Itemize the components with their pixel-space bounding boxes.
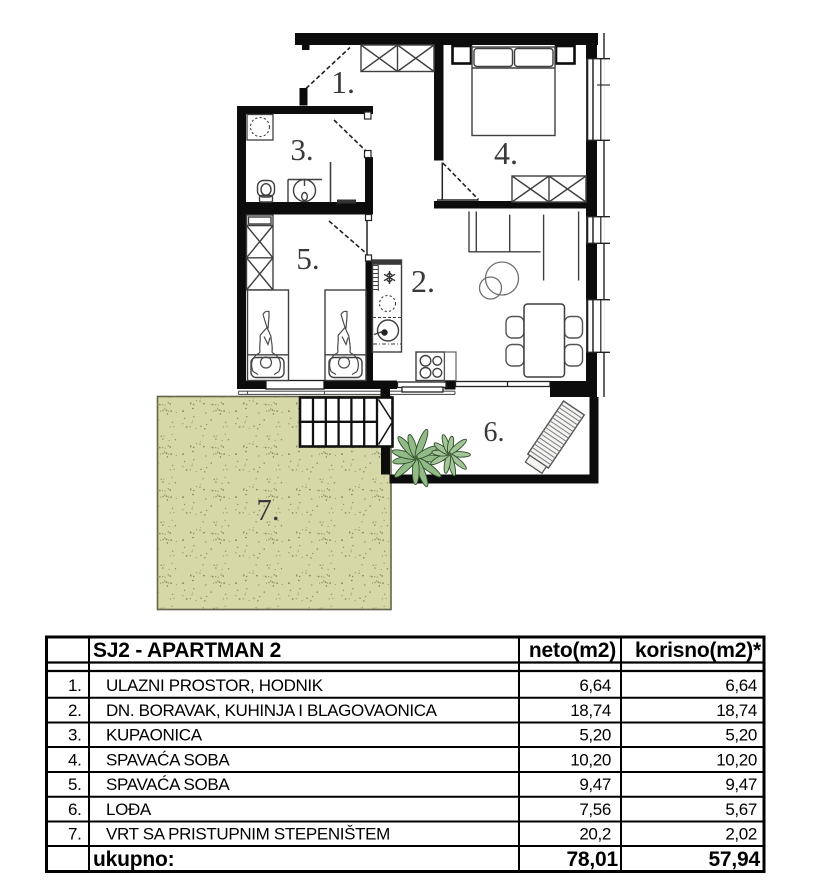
svg-text:5.: 5.	[296, 241, 319, 276]
svg-text:5,67: 5,67	[725, 800, 757, 819]
svg-text:DN. BORAVAK, KUHINJA I BLAGOVA: DN. BORAVAK, KUHINJA I BLAGOVAONICA	[106, 701, 438, 720]
svg-text:18,74: 18,74	[570, 701, 611, 720]
svg-text:1.: 1.	[68, 676, 81, 695]
svg-text:20,2: 20,2	[579, 825, 611, 844]
svg-text:ukupno:: ukupno:	[93, 848, 174, 871]
svg-text:1.: 1.	[331, 64, 355, 100]
svg-text:2.: 2.	[68, 701, 81, 720]
svg-text:SPAVAĆA SOBA: SPAVAĆA SOBA	[106, 775, 230, 794]
svg-text:9,47: 9,47	[579, 775, 611, 794]
svg-text:2.: 2.	[411, 263, 435, 299]
svg-text:9,47: 9,47	[725, 775, 757, 794]
svg-text:6.: 6.	[68, 800, 81, 819]
svg-text:3.: 3.	[290, 132, 313, 167]
svg-text:LOĐA: LOĐA	[106, 800, 152, 819]
svg-text:korisno(m2)*: korisno(m2)*	[635, 639, 762, 662]
svg-text:10,20: 10,20	[716, 751, 757, 770]
svg-text:7.: 7.	[68, 825, 81, 844]
svg-text:5.: 5.	[68, 775, 81, 794]
svg-text:4.: 4.	[68, 751, 81, 770]
svg-text:57,94: 57,94	[708, 848, 760, 871]
svg-text:6.: 6.	[484, 417, 505, 448]
svg-text:SPAVAĆA SOBA: SPAVAĆA SOBA	[106, 751, 230, 770]
svg-text:2,02: 2,02	[725, 825, 757, 844]
svg-text:KUPAONICA: KUPAONICA	[106, 726, 203, 745]
svg-text:5,20: 5,20	[579, 726, 611, 745]
svg-text:SJ2 - APARTMAN 2: SJ2 - APARTMAN 2	[93, 639, 281, 662]
svg-text:4.: 4.	[494, 135, 518, 171]
svg-text:10,20: 10,20	[570, 751, 611, 770]
svg-text:18,74: 18,74	[716, 701, 757, 720]
svg-text:7,56: 7,56	[579, 800, 611, 819]
svg-text:6,64: 6,64	[579, 676, 611, 695]
svg-text:5,20: 5,20	[725, 726, 757, 745]
svg-text:ULAZNI PROSTOR, HODNIK: ULAZNI PROSTOR, HODNIK	[106, 676, 324, 695]
svg-text:VRT SA PRISTUPNIM STEPENIŠTEM: VRT SA PRISTUPNIM STEPENIŠTEM	[106, 825, 390, 844]
svg-text:78,01: 78,01	[566, 848, 618, 871]
svg-text:6,64: 6,64	[725, 676, 757, 695]
svg-text:neto(m2): neto(m2)	[529, 639, 616, 662]
svg-text:7.: 7.	[256, 492, 279, 527]
svg-text:3.: 3.	[68, 726, 81, 745]
